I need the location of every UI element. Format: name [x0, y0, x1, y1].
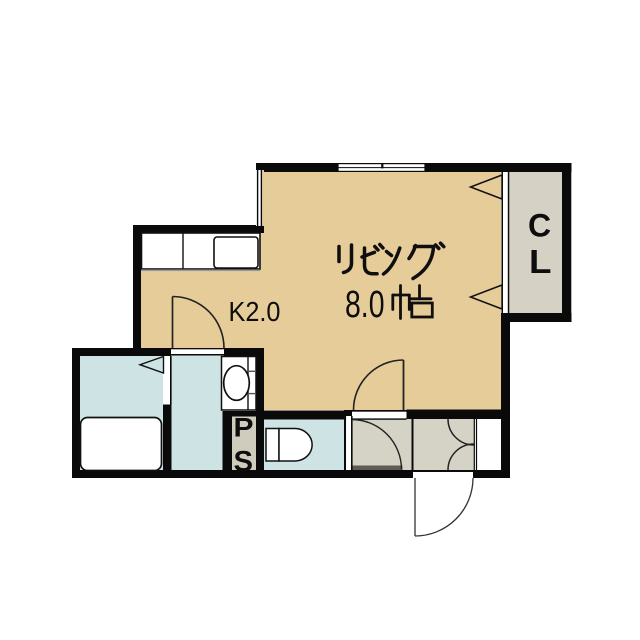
svg-text:P: P: [234, 412, 254, 442]
svg-text:K2.0: K2.0: [229, 296, 281, 327]
svg-text:S: S: [234, 446, 254, 478]
svg-text:8.0: 8.0: [345, 284, 385, 326]
svg-text:L: L: [529, 243, 552, 280]
svg-text:C: C: [528, 208, 551, 244]
